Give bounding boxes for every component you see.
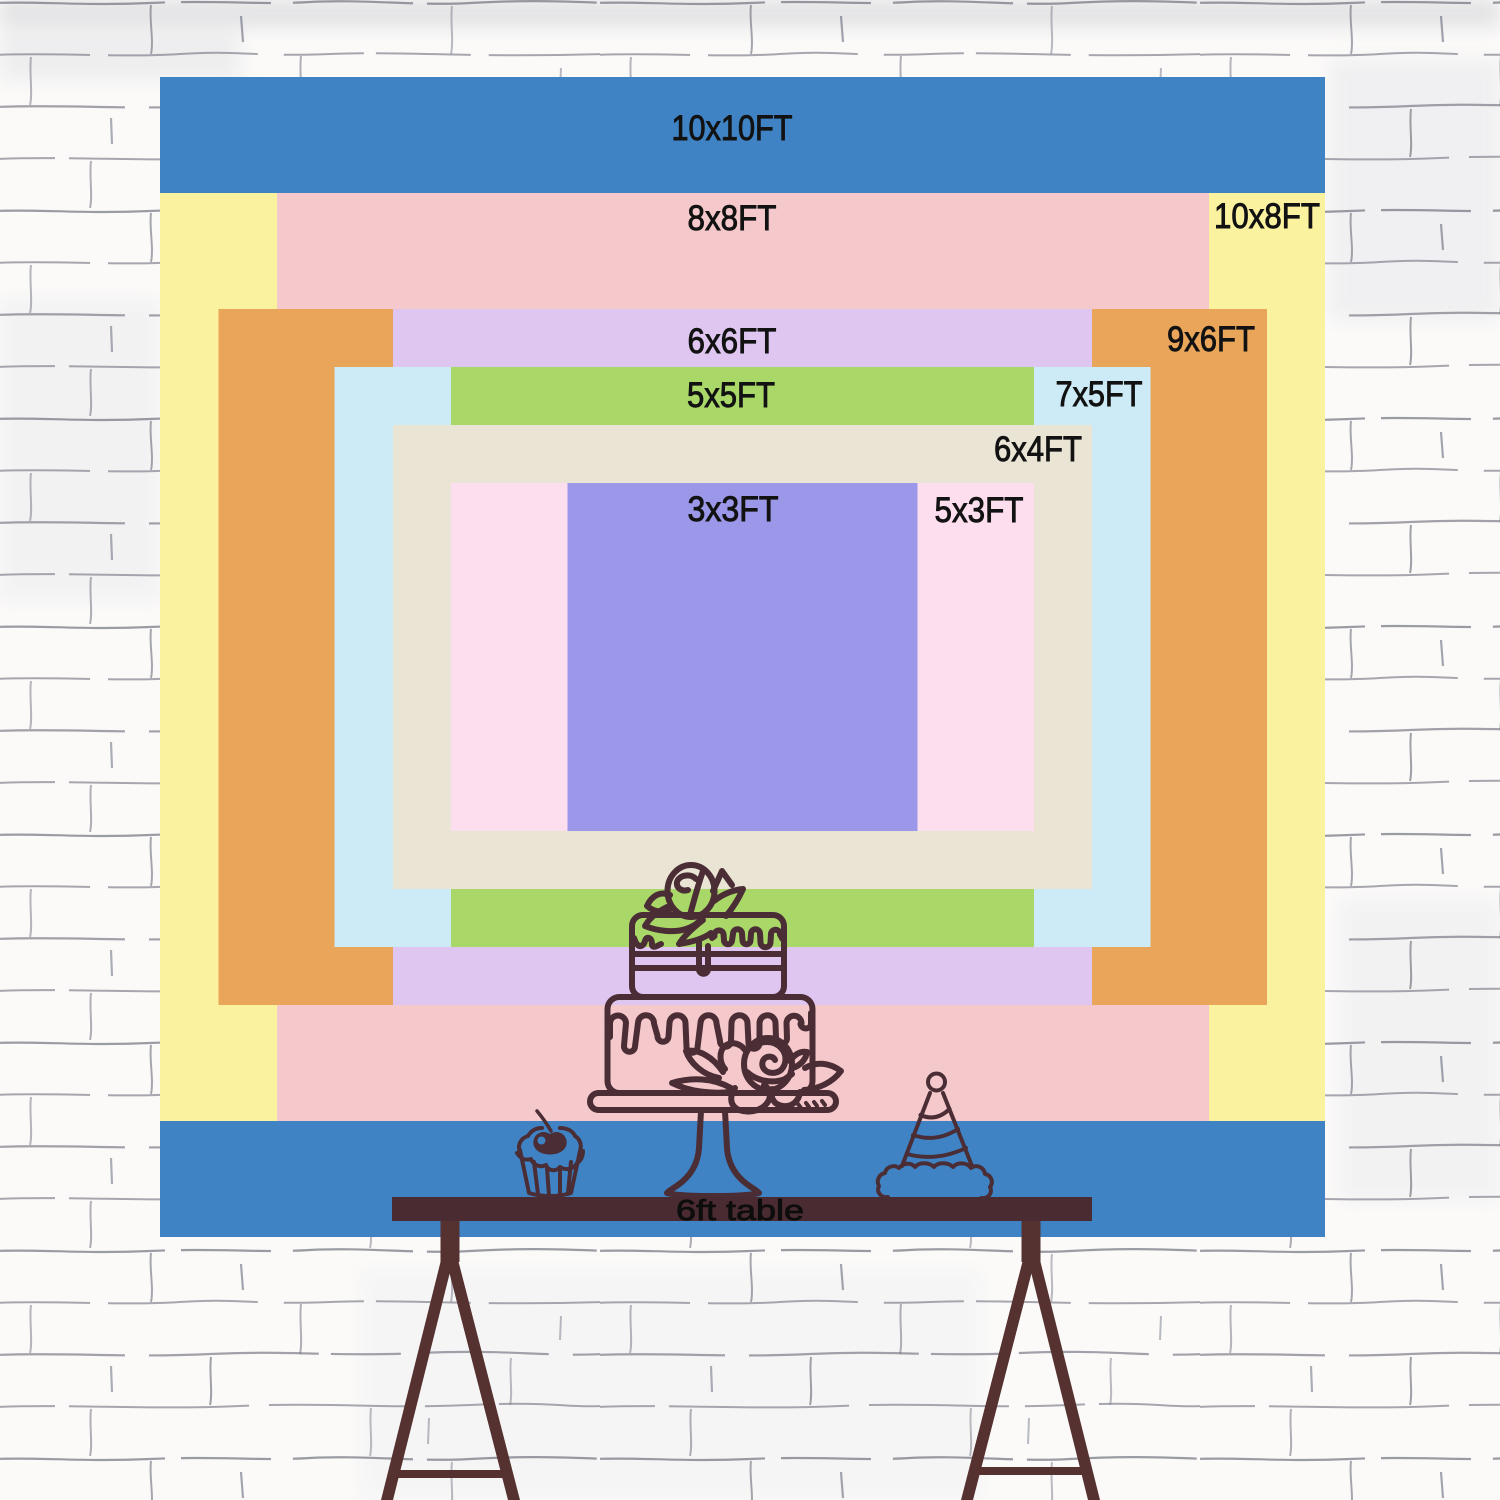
svg-text:9x6FT: 9x6FT [1167,320,1255,359]
svg-text:5x5FT: 5x5FT [687,376,775,415]
svg-text:7x5FT: 7x5FT [1056,375,1143,414]
svg-text:10x10FT: 10x10FT [672,109,793,148]
svg-text:6ft table: 6ft table [676,1195,804,1227]
svg-text:5x3FT: 5x3FT [935,491,1024,530]
svg-text:8x8FT: 8x8FT [688,199,777,238]
svg-text:3x3FT: 3x3FT [688,490,779,529]
svg-text:6x4FT: 6x4FT [994,430,1082,469]
svg-text:6x6FT: 6x6FT [688,322,777,361]
svg-text:10x8FT: 10x8FT [1214,197,1320,236]
